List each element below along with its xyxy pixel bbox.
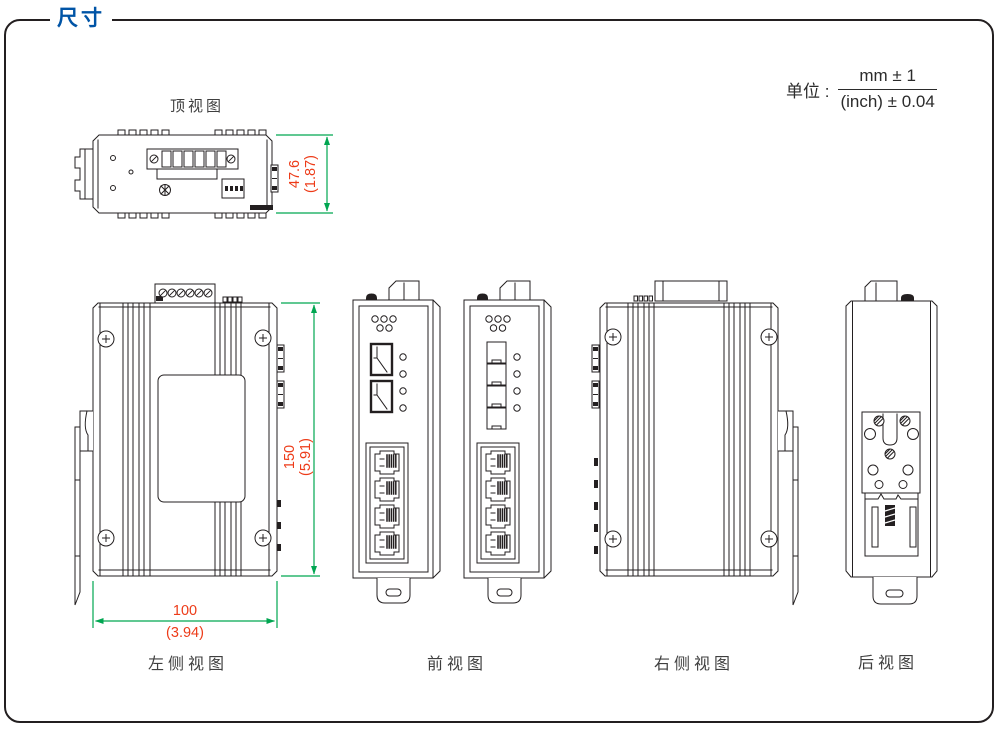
terminal-block-side (155, 284, 242, 303)
mount-hole (865, 429, 876, 440)
side-connector-profile (271, 165, 278, 192)
mount-screw-icon (885, 449, 895, 459)
housing-screw-icon (605, 531, 621, 547)
dip-switch-block (222, 179, 244, 198)
din-clip-left-view (75, 411, 93, 605)
unit-mm: mm ± 1 (838, 66, 936, 90)
din-clip-top-view (75, 149, 93, 199)
left-side-view (75, 284, 284, 605)
dimension-depth-mm: 47.6 (287, 160, 303, 188)
housing-screw-icon (761, 531, 777, 547)
dimension-depth-inch: (1.87) (303, 155, 319, 193)
left-view-label: 左侧视图 (148, 655, 228, 673)
sfp-cage-profile (277, 381, 284, 408)
din-clip-right-view (778, 411, 798, 605)
housing-screw-icon (605, 329, 621, 345)
page-title: 尺寸 (50, 2, 112, 32)
mount-hole (899, 481, 907, 489)
mount-hole (908, 429, 919, 440)
label-strip (250, 205, 273, 210)
front-view-label: 前视图 (427, 655, 487, 673)
mounting-tab (488, 578, 521, 603)
sfp-cage-profile (592, 345, 599, 372)
top-view: 顶视图 (75, 98, 278, 218)
front-view-rj45 (464, 281, 551, 603)
pilot-hole (111, 186, 116, 191)
terminal-block-rear (865, 281, 897, 301)
unit-note: 单位 : mm ± 1 (inch) ± 0.04 (786, 66, 937, 112)
housing-screw-icon (255, 530, 271, 546)
mount-screw-icon (874, 416, 884, 426)
unit-label: 单位 : (786, 77, 829, 102)
dimension-drawing-page: 尺寸 单位 : mm ± 1 (inch) ± 0.04 (0, 0, 1000, 733)
mount-hole (868, 465, 878, 475)
din-mount-plate (862, 412, 920, 493)
dimension-depth: 47.6 (1.87) (276, 135, 333, 213)
housing-screw-icon (98, 530, 114, 546)
dimension-width: 100 (3.94) (93, 581, 277, 641)
reset-button (901, 294, 914, 301)
right-side-view (592, 281, 798, 605)
dimension-height: 150 (5.91) (281, 303, 320, 576)
dimension-height-mm: 150 (282, 445, 298, 469)
dimension-width-inch: (3.94) (166, 625, 204, 641)
sfp-cage-profile (277, 345, 284, 372)
top-view-label: 顶视图 (170, 98, 224, 115)
housing-screw-icon (761, 329, 777, 345)
uplink-ports (487, 342, 506, 429)
port-latch-marks (594, 458, 598, 554)
housing-screw-icon (98, 331, 114, 347)
mount-hole (875, 481, 883, 489)
mount-screw-icon (900, 416, 910, 426)
terminal-block-side (634, 281, 727, 301)
dimension-height-inch: (5.91) (298, 438, 314, 476)
terminal-screw-icon (150, 155, 158, 163)
mounting-tab (377, 578, 410, 603)
sfp-cage-profile (592, 381, 599, 408)
mount-hole (903, 465, 913, 475)
right-view-body (600, 303, 778, 576)
terminal-screw-icon (227, 155, 235, 163)
unit-fraction: mm ± 1 (inch) ± 0.04 (838, 66, 936, 112)
rear-view (846, 281, 937, 604)
rear-view-label: 后视图 (858, 654, 918, 672)
ground-screw-icon (160, 185, 171, 196)
right-view-label: 右侧视图 (654, 655, 734, 673)
label-plate (158, 375, 245, 502)
unit-inch: (inch) ± 0.04 (838, 90, 936, 112)
housing-screw-icon (255, 330, 271, 346)
front-view-sfp (353, 281, 440, 603)
dimension-width-mm: 100 (173, 603, 197, 619)
pilot-hole (111, 156, 116, 161)
pilot-hole (129, 170, 133, 174)
port-latch-marks (277, 500, 281, 551)
